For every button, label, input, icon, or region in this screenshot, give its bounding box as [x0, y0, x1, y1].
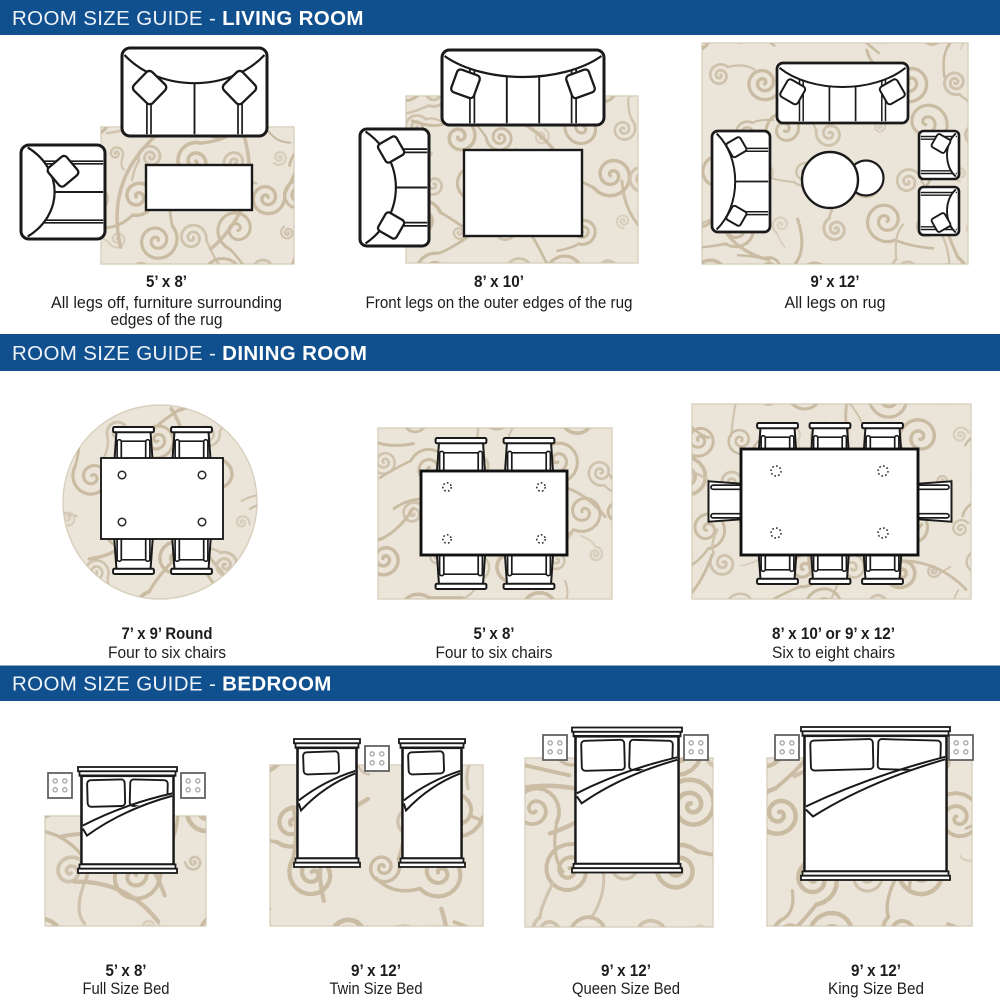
svg-text:Six to eight chairs: Six to eight chairs	[772, 643, 895, 662]
svg-text:5’ x 8’: 5’ x 8’	[146, 273, 187, 291]
svg-text:9’ x 12’: 9’ x 12’	[811, 273, 860, 291]
svg-text:9’ x 12’: 9’ x 12’	[851, 962, 901, 980]
svg-text:ROOM SIZE GUIDE - BEDROOM: ROOM SIZE GUIDE - BEDROOM	[12, 673, 332, 696]
svg-text:ROOM SIZE GUIDE - DINING ROOM: ROOM SIZE GUIDE - DINING ROOM	[12, 342, 367, 365]
svg-text:Twin Size Bed: Twin Size Bed	[330, 979, 423, 998]
svg-text:9’ x 12’: 9’ x 12’	[601, 962, 651, 980]
svg-text:edges of the rug: edges of the rug	[111, 310, 223, 329]
svg-text:9’ x 12’: 9’ x 12’	[351, 962, 401, 980]
svg-text:5’ x 8’: 5’ x 8’	[474, 625, 515, 643]
svg-text:7’ x 9’ Round: 7’ x 9’ Round	[122, 625, 213, 643]
svg-text:5’ x 8’: 5’ x 8’	[106, 962, 147, 980]
svg-text:Four to six chairs: Four to six chairs	[108, 643, 226, 662]
svg-text:8’ x 10’ or 9’ x 12’: 8’ x 10’ or 9’ x 12’	[772, 625, 895, 643]
svg-text:King Size Bed: King Size Bed	[828, 979, 924, 998]
svg-text:8’ x 10’: 8’ x 10’	[474, 273, 524, 291]
svg-text:All legs on rug: All legs on rug	[785, 293, 886, 312]
svg-text:Queen Size Bed: Queen Size Bed	[572, 979, 680, 998]
svg-text:Four to six chairs: Four to six chairs	[436, 643, 553, 662]
svg-text:Full Size Bed: Full Size Bed	[83, 979, 170, 998]
svg-text:Front legs on the outer edges: Front legs on the outer edges of the rug	[366, 293, 633, 312]
svg-text:ROOM SIZE GUIDE - LIVING ROOM: ROOM SIZE GUIDE - LIVING ROOM	[12, 7, 364, 30]
